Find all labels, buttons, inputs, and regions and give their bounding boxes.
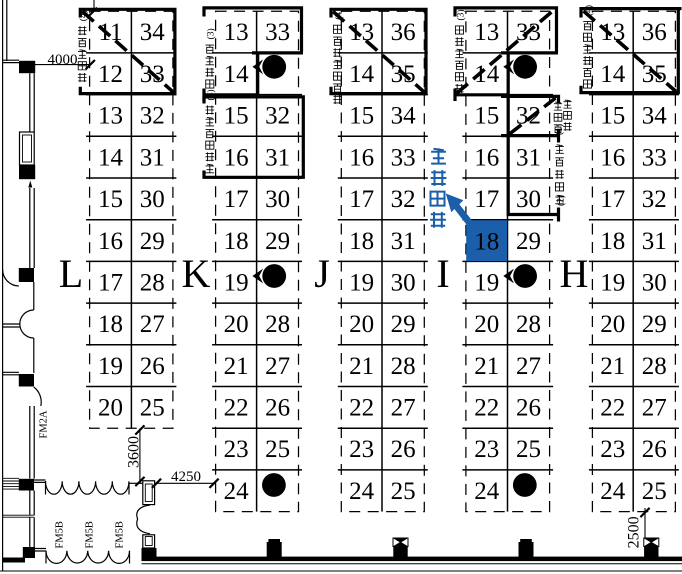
svg-text:16: 16	[224, 144, 249, 171]
svg-text:J: J	[314, 251, 330, 296]
svg-text:27: 27	[516, 353, 541, 380]
svg-text:28: 28	[642, 353, 667, 380]
svg-text:28: 28	[516, 311, 541, 338]
svg-text:20: 20	[600, 311, 625, 338]
svg-text:18: 18	[224, 228, 249, 255]
svg-text:13: 13	[98, 103, 123, 130]
svg-text:15: 15	[349, 103, 374, 130]
svg-text:18: 18	[600, 228, 625, 255]
svg-text:16: 16	[474, 144, 499, 171]
svg-text:H: H	[560, 251, 589, 296]
svg-text:16: 16	[349, 144, 374, 171]
svg-text:FM2A: FM2A	[39, 410, 50, 438]
svg-text:29: 29	[516, 228, 541, 255]
svg-text:FM5B: FM5B	[115, 521, 126, 548]
svg-text:21: 21	[224, 353, 249, 380]
svg-text:22: 22	[600, 395, 625, 422]
svg-text:FM5B: FM5B	[55, 521, 66, 548]
svg-text:17: 17	[224, 186, 249, 213]
svg-text:FM5B: FM5B	[85, 521, 96, 548]
svg-text:3600: 3600	[125, 436, 142, 468]
svg-text:19: 19	[98, 353, 123, 380]
svg-text:30: 30	[265, 186, 290, 213]
svg-text:34: 34	[391, 103, 417, 130]
svg-text:21: 21	[349, 353, 374, 380]
svg-text:(1): (1)	[554, 124, 565, 135]
svg-text:26: 26	[642, 436, 667, 463]
svg-text:25: 25	[391, 478, 416, 505]
svg-text:14: 14	[98, 144, 124, 171]
svg-text:26: 26	[265, 395, 290, 422]
svg-text:L: L	[59, 251, 83, 296]
svg-text:15: 15	[224, 103, 249, 130]
svg-text:(4): (4)	[78, 10, 89, 21]
svg-text:12: 12	[98, 61, 123, 88]
svg-text:4000: 4000	[48, 52, 78, 68]
svg-text:23: 23	[474, 436, 499, 463]
svg-text:36: 36	[642, 19, 667, 46]
svg-text:30: 30	[516, 186, 541, 213]
svg-text:33: 33	[642, 144, 667, 171]
svg-text:20: 20	[224, 311, 249, 338]
svg-text:25: 25	[516, 436, 541, 463]
svg-text:26: 26	[516, 395, 541, 422]
svg-text:K: K	[182, 251, 211, 296]
svg-text:18: 18	[98, 311, 123, 338]
svg-text:22: 22	[224, 395, 249, 422]
svg-text:31: 31	[516, 144, 541, 171]
svg-text:15: 15	[474, 103, 499, 130]
svg-text:22: 22	[474, 395, 499, 422]
svg-text:34: 34	[642, 103, 668, 130]
svg-text:29: 29	[391, 311, 416, 338]
svg-text:29: 29	[642, 311, 667, 338]
svg-text:I: I	[436, 251, 449, 296]
svg-text:13: 13	[224, 19, 249, 46]
svg-text:(4): (4)	[333, 9, 344, 20]
svg-text:20: 20	[349, 311, 374, 338]
svg-text:4250: 4250	[171, 469, 201, 485]
svg-text:30: 30	[642, 269, 667, 296]
svg-text:23: 23	[349, 436, 374, 463]
svg-text:19: 19	[224, 269, 249, 296]
svg-text:23: 23	[224, 436, 249, 463]
svg-text:(4): (4)	[583, 5, 594, 16]
svg-text:20: 20	[98, 395, 123, 422]
svg-text:16: 16	[98, 228, 123, 255]
svg-text:28: 28	[391, 353, 416, 380]
svg-text:26: 26	[391, 436, 416, 463]
svg-text:24: 24	[600, 478, 626, 505]
svg-text:15: 15	[600, 103, 625, 130]
svg-text:27: 27	[642, 395, 667, 422]
svg-text:27: 27	[140, 311, 165, 338]
svg-text:29: 29	[140, 228, 165, 255]
svg-text:25: 25	[642, 478, 667, 505]
svg-text:31: 31	[642, 228, 667, 255]
svg-text:32: 32	[642, 186, 667, 213]
svg-text:32: 32	[140, 103, 165, 130]
svg-text:17: 17	[98, 269, 123, 296]
svg-text:14: 14	[224, 61, 250, 88]
svg-text:30: 30	[140, 186, 165, 213]
svg-text:33: 33	[391, 144, 416, 171]
svg-text:17: 17	[600, 186, 625, 213]
svg-text:29: 29	[265, 228, 290, 255]
svg-text:34: 34	[140, 19, 166, 46]
svg-text:17: 17	[474, 186, 499, 213]
svg-text:(3): (3)	[455, 9, 466, 20]
svg-text:23: 23	[600, 436, 625, 463]
svg-text:19: 19	[474, 269, 499, 296]
svg-text:(2): (2)	[555, 195, 566, 206]
svg-text:15: 15	[98, 186, 123, 213]
svg-text:33: 33	[265, 19, 290, 46]
svg-text:24: 24	[349, 478, 375, 505]
svg-text:31: 31	[265, 144, 290, 171]
svg-text:31: 31	[391, 228, 416, 255]
svg-text:(4): (4)	[206, 89, 217, 100]
svg-text:36: 36	[391, 19, 416, 46]
svg-text:18: 18	[349, 228, 374, 255]
svg-text:25: 25	[140, 395, 165, 422]
svg-text:22: 22	[349, 395, 374, 422]
svg-text:16: 16	[600, 144, 625, 171]
svg-text:17: 17	[349, 186, 374, 213]
svg-text:2500: 2500	[625, 516, 642, 548]
svg-text:21: 21	[600, 353, 625, 380]
svg-text:14: 14	[600, 61, 626, 88]
svg-text:31: 31	[140, 144, 165, 171]
svg-text:25: 25	[265, 436, 290, 463]
svg-text:(3): (3)	[206, 28, 217, 39]
svg-text:27: 27	[265, 353, 290, 380]
svg-text:24: 24	[474, 478, 500, 505]
svg-text:19: 19	[349, 269, 374, 296]
svg-text:20: 20	[474, 311, 499, 338]
svg-text:30: 30	[391, 269, 416, 296]
svg-text:32: 32	[391, 186, 416, 213]
svg-text:24: 24	[224, 478, 250, 505]
svg-text:14: 14	[349, 61, 375, 88]
svg-text:21: 21	[474, 353, 499, 380]
svg-text:18: 18	[474, 229, 499, 256]
svg-text:27: 27	[391, 395, 416, 422]
svg-text:13: 13	[474, 19, 499, 46]
svg-text:28: 28	[265, 311, 290, 338]
svg-text:28: 28	[140, 269, 165, 296]
svg-text:32: 32	[265, 103, 290, 130]
svg-text:26: 26	[140, 353, 165, 380]
svg-text:19: 19	[600, 269, 625, 296]
